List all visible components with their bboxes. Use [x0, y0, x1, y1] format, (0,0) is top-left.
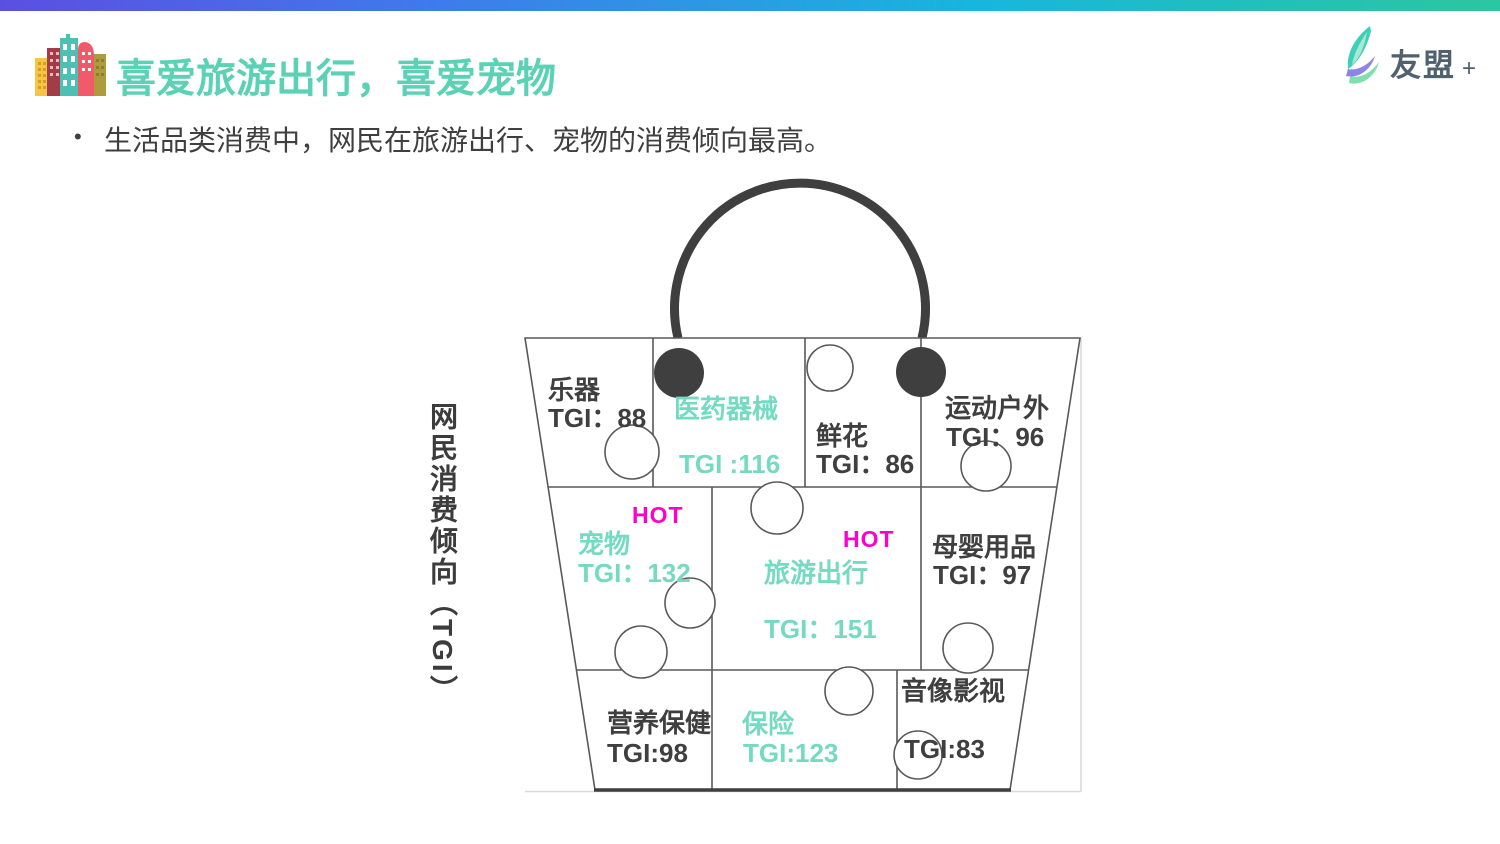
- cell-medical-name: 医药器械: [674, 396, 778, 423]
- cell-nutrition-tgi: TGI:98: [607, 740, 688, 767]
- cell-av-media-tgi: TGI:83: [904, 736, 985, 763]
- cell-medical-tgi: TGI :116: [679, 451, 780, 478]
- cell-flowers-tgi: TGI：86: [816, 451, 914, 478]
- cell-music-name: 乐器: [548, 377, 600, 404]
- cell-insurance-tgi: TGI:123: [743, 740, 838, 767]
- cell-baby-tgi: TGI：97: [933, 562, 1031, 589]
- cell-music-tgi: TGI：88: [548, 405, 646, 432]
- cell-pets-name: 宠物: [578, 531, 630, 558]
- cell-travel-name: 旅游出行: [764, 560, 868, 587]
- bag-handle: [675, 183, 926, 338]
- cell-pets-tgi: TGI：132: [578, 560, 691, 587]
- cell-av-media-name: 音像影视: [901, 678, 1005, 705]
- cell-travel-tgi: TGI：151: [764, 616, 877, 643]
- cell-sports-name: 运动户外: [945, 395, 1049, 422]
- hot-badge-travel: HOT: [843, 526, 895, 553]
- slide: 喜爱旅游出行，喜爱宠物 友盟+ • 生活品类消费中，网民在旅游出行、宠物的消费倾…: [0, 0, 1500, 844]
- cell-sports-tgi: TGI：96: [946, 424, 1044, 451]
- cell-insurance-name: 保险: [742, 711, 794, 738]
- cell-baby-name: 母婴用品: [932, 534, 1036, 561]
- hot-badge-pets: HOT: [632, 502, 684, 529]
- cell-nutrition-name: 营养保健: [607, 710, 711, 737]
- cell-flowers-name: 鲜花: [816, 423, 868, 450]
